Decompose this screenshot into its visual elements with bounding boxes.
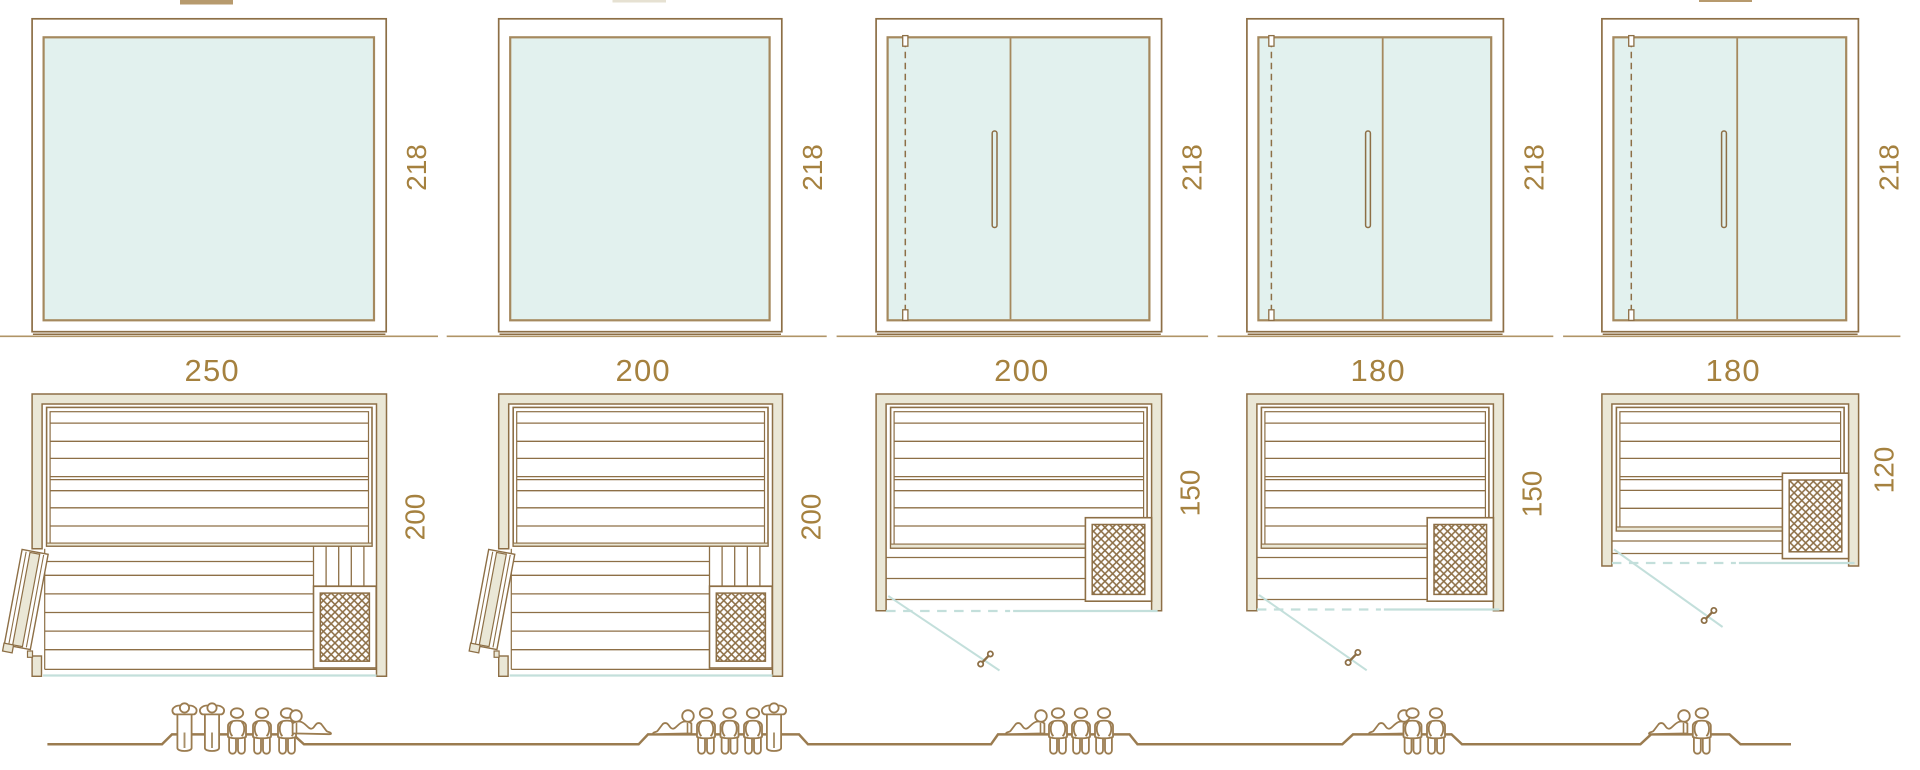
svg-text:150: 150 [1174,470,1205,517]
svg-text:180: 180 [1351,353,1406,388]
svg-text:218: 218 [401,144,432,191]
svg-text:218: 218 [797,144,828,191]
svg-text:200: 200 [616,353,671,388]
svg-text:200: 200 [399,494,430,541]
svg-text:218: 218 [1873,144,1904,191]
svg-text:250: 250 [185,353,240,388]
svg-text:218: 218 [1518,144,1549,191]
svg-text:200: 200 [795,494,826,541]
svg-text:150: 150 [1517,471,1548,518]
svg-text:120: 120 [1869,447,1900,494]
svg-text:180: 180 [1706,353,1761,388]
svg-text:200: 200 [994,353,1049,388]
svg-text:218: 218 [1177,144,1208,191]
